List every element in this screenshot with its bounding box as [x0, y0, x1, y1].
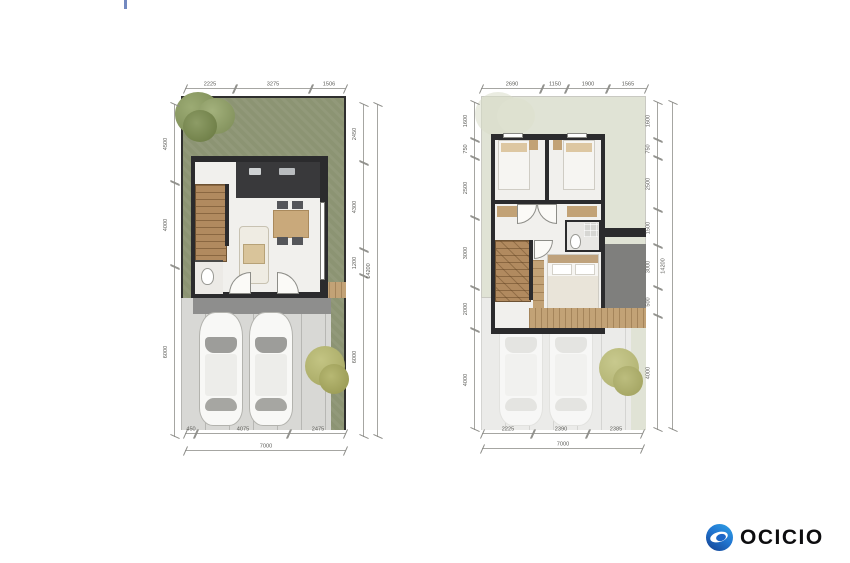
stair-wall — [225, 184, 229, 246]
dim-segment: 450 — [185, 433, 196, 434]
dim-label: 4075 — [236, 425, 248, 431]
dim-label: 500 — [645, 297, 651, 306]
dim-segment: 6000 — [363, 276, 364, 437]
dim-label: 4300 — [351, 200, 357, 212]
bush — [305, 346, 351, 400]
kitchen-stove — [279, 168, 295, 175]
car-roof — [255, 354, 287, 396]
dim-segment: 2000 — [474, 288, 475, 330]
dim-label: 4000 — [645, 367, 651, 379]
dim-segment: 2500 — [657, 158, 658, 210]
brand-logo-icon — [706, 524, 733, 551]
dim-label: 3275 — [267, 80, 279, 86]
dim-segment-total: 14200 — [377, 104, 378, 437]
tree — [175, 92, 245, 148]
dim-label: 7000 — [556, 440, 568, 446]
dim-segment: 2690 — [481, 88, 542, 89]
dim-label: 1200 — [351, 257, 357, 269]
dim-segment: 1600 — [657, 102, 658, 140]
dim-label: 1506 — [322, 80, 334, 86]
dim-segment: 1200 — [363, 250, 364, 276]
dim-label: 3000 — [462, 247, 468, 259]
dim-segment: 4000 — [174, 183, 175, 267]
car — [249, 312, 293, 426]
dim-label: 4500 — [162, 137, 168, 149]
window — [567, 133, 587, 138]
balcony-deck — [529, 308, 646, 328]
dim-label: 2500 — [462, 182, 468, 194]
dim-segment: 1600 — [474, 102, 475, 140]
car — [199, 312, 243, 426]
car-windshield — [255, 337, 287, 353]
wardrobe — [533, 260, 544, 308]
upper-floor-plan — [481, 96, 646, 430]
dim-label: 1150 — [548, 80, 560, 86]
kitchen-sink — [249, 168, 261, 175]
dim-segment: 2500 — [474, 158, 475, 218]
dining-chair — [277, 201, 288, 209]
dim-segment: 500 — [657, 288, 658, 316]
dim-segment: 4500 — [174, 104, 175, 183]
dim-label: 2385 — [609, 425, 621, 431]
bedroom-divider-wall — [545, 140, 549, 202]
dim-segment: 4300 — [363, 163, 364, 250]
dim-label: 4000 — [162, 219, 168, 231]
dim-label: 6000 — [162, 346, 168, 358]
master-bed — [547, 254, 599, 310]
dim-label: 1565 — [621, 80, 633, 86]
bed — [498, 140, 530, 190]
dim-label: 2390 — [554, 425, 566, 431]
dim-label: 750 — [645, 144, 651, 153]
dim-segment: 750 — [474, 140, 475, 158]
car-roof — [205, 354, 237, 396]
car-rear-window — [205, 398, 237, 411]
dim-segment: 2385 — [588, 433, 643, 434]
desk — [567, 206, 597, 217]
dining-chair — [292, 201, 303, 209]
dim-label: 2225 — [501, 425, 513, 431]
brand-logo-text: OCICIO — [740, 526, 824, 550]
bush — [599, 348, 645, 402]
dim-label: 1600 — [462, 115, 468, 127]
dining-chair — [292, 237, 303, 245]
upper-staircase — [495, 240, 531, 302]
car-rear-window — [255, 398, 287, 411]
logo-core-dot — [715, 533, 727, 542]
dim-label: 1600 — [645, 115, 651, 127]
dim-label: 14200 — [365, 263, 371, 279]
nightstand — [529, 140, 538, 150]
dim-label: 4000 — [462, 374, 468, 386]
dim-segment: 3000 — [474, 218, 475, 288]
dim-label: 2500 — [645, 178, 651, 190]
nightstand — [553, 140, 562, 150]
dim-segment: 1500 — [657, 210, 658, 246]
dim-segment-total: 7000 — [185, 450, 346, 451]
coffee-table — [243, 244, 265, 264]
top-blue-mark — [124, 0, 127, 9]
dim-label: 7000 — [259, 442, 271, 448]
dim-label: 750 — [462, 144, 468, 153]
dim-segment: 2225 — [482, 433, 533, 434]
ground-floor-plan — [181, 96, 346, 430]
dim-label: 1500 — [645, 222, 651, 234]
dim-segment: 4075 — [196, 433, 289, 434]
car-windshield — [205, 337, 237, 353]
window — [503, 133, 523, 138]
toilet — [570, 234, 581, 249]
dim-segment: 4000 — [657, 316, 658, 430]
staircase — [195, 184, 227, 262]
shower — [584, 223, 598, 237]
dim-segment: 3000 — [657, 246, 658, 288]
dim-segment: 1150 — [542, 88, 567, 89]
balcony-edge — [529, 328, 605, 333]
dim-label: 2000 — [462, 303, 468, 315]
dim-segment-total: 7000 — [482, 448, 643, 449]
dim-segment: 1900 — [567, 88, 608, 89]
dim-segment: 2450 — [363, 104, 364, 163]
dim-segment: 750 — [657, 140, 658, 158]
dim-label: 450 — [186, 425, 195, 431]
dim-segment: 1565 — [608, 88, 647, 89]
brand-logo: OCICIO — [706, 524, 824, 551]
window — [320, 202, 325, 280]
dim-segment: 3275 — [235, 88, 311, 89]
dim-segment-total: 14200 — [672, 102, 673, 430]
dim-label: 2690 — [505, 80, 517, 86]
toilet — [201, 268, 214, 285]
dim-label: 14200 — [660, 258, 666, 274]
floor-plan-sheet: 2225 3275 1506 4500 4000 6000 2450 4300 … — [0, 0, 850, 563]
dim-segment: 1506 — [311, 88, 346, 89]
dim-label: 6000 — [351, 350, 357, 362]
dining-table — [273, 210, 309, 238]
dim-label: 2450 — [351, 127, 357, 139]
dining-chair — [277, 237, 288, 245]
dim-segment: 2475 — [289, 433, 346, 434]
dim-label: 2225 — [204, 80, 216, 86]
dim-label: 3000 — [645, 261, 651, 273]
dim-label: 2475 — [311, 425, 323, 431]
dim-segment: 2390 — [533, 433, 588, 434]
dim-label: 1900 — [581, 80, 593, 86]
dim-segment: 6000 — [174, 267, 175, 437]
dim-segment: 4000 — [474, 330, 475, 430]
roof-deck-gray — [605, 244, 646, 308]
wall-extension — [601, 228, 646, 237]
bed — [563, 140, 595, 190]
dim-segment: 2225 — [185, 88, 235, 89]
